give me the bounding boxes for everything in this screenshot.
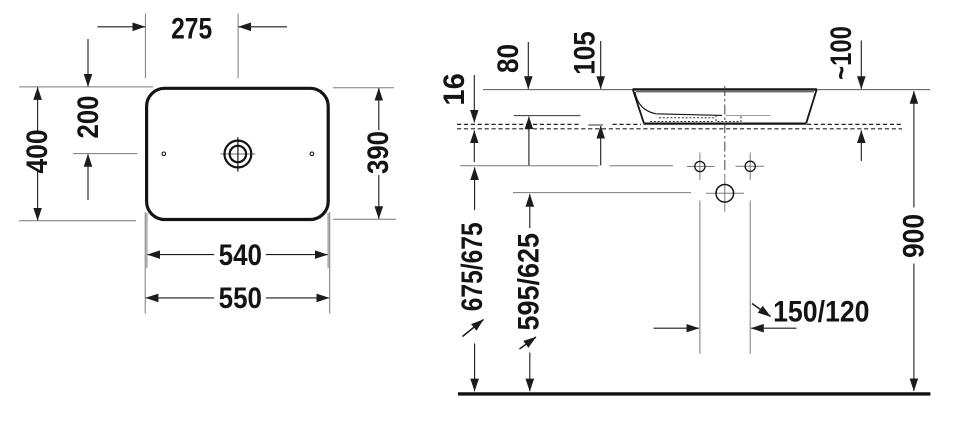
svg-text:550: 550 [219,281,262,314]
svg-text:390: 390 [361,131,394,174]
svg-text:~100: ~100 [823,26,857,80]
svg-text:200: 200 [71,95,104,138]
svg-text:540: 540 [219,238,262,271]
svg-text:150/120: 150/120 [773,295,869,329]
svg-text:900: 900 [896,214,930,258]
svg-text:16: 16 [438,73,471,105]
svg-text:80: 80 [491,44,524,73]
svg-text:595/625: 595/625 [512,233,546,331]
svg-text:105: 105 [568,31,601,75]
svg-text:400: 400 [19,129,53,173]
svg-text:675/675: 675/675 [455,222,489,311]
svg-text:275: 275 [171,11,212,45]
